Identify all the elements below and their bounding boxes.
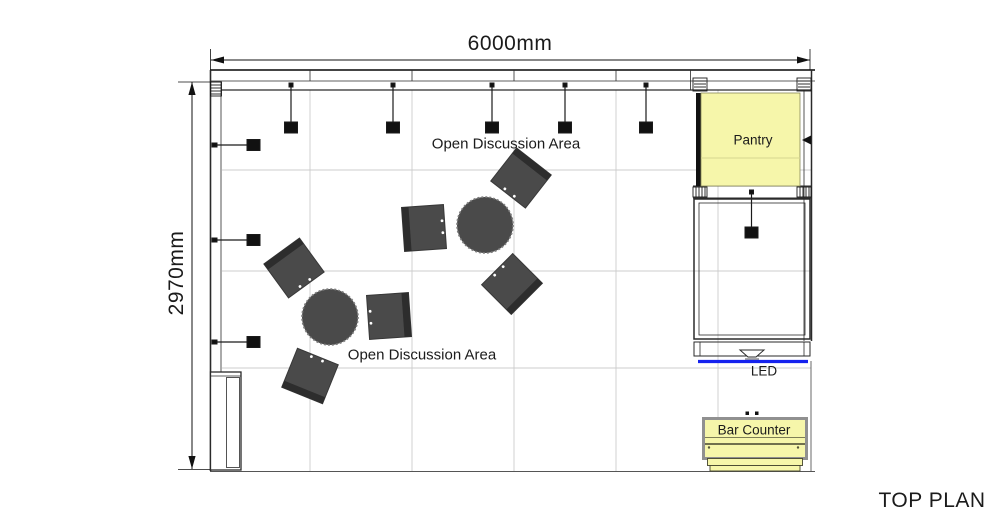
chair <box>264 238 324 298</box>
pantry-wall-light-icon <box>802 136 811 145</box>
pantry-label: Pantry <box>733 133 772 148</box>
bar-counter-block <box>704 412 807 472</box>
floor-plan-drawing <box>0 0 1000 527</box>
round-table <box>302 289 358 345</box>
round-table <box>457 197 513 253</box>
cabinet-bottom-left <box>211 372 242 470</box>
wall-light-icon <box>212 140 260 151</box>
dimension-height-label: 2970mm <box>165 231 189 316</box>
wall-light-icon <box>212 337 260 348</box>
open-discussion-area-label-bottom: Open Discussion Area <box>348 347 496 364</box>
drawing-title: TOP PLAN <box>878 489 985 513</box>
dimension-width-label: 6000mm <box>468 32 553 56</box>
pendant-light-below-pantry <box>745 190 758 238</box>
wall-light-icon <box>212 235 260 246</box>
chair <box>367 293 412 340</box>
floor-plan-canvas: 6000mm 2970mm Open Discussion Area Open … <box>0 0 1000 527</box>
bar-counter-label: Bar Counter <box>718 423 791 438</box>
chair <box>282 348 339 403</box>
chair <box>402 205 447 252</box>
chairs <box>264 148 551 404</box>
wall-lights-left <box>212 140 260 348</box>
open-discussion-area-label-top: Open Discussion Area <box>432 136 580 153</box>
led-label: LED <box>751 364 777 379</box>
chair <box>482 254 543 315</box>
chair <box>491 148 552 208</box>
